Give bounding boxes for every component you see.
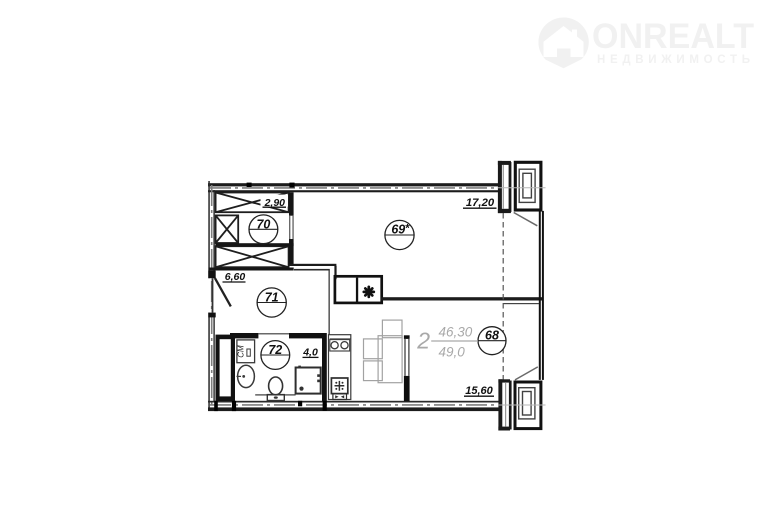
svg-text:49,0: 49,0 bbox=[439, 344, 466, 359]
svg-text:68: 68 bbox=[485, 329, 499, 343]
svg-text:72: 72 bbox=[268, 343, 282, 357]
svg-text:69: 69 bbox=[391, 223, 405, 237]
svg-text:6,60: 6,60 bbox=[225, 271, 246, 283]
svg-text:15,60: 15,60 bbox=[465, 385, 493, 397]
svg-text:17,20: 17,20 bbox=[466, 197, 495, 209]
svg-text:70: 70 bbox=[256, 217, 270, 231]
svg-text:СМ: СМ bbox=[237, 345, 246, 358]
svg-text:46,30: 46,30 bbox=[439, 324, 473, 339]
svg-text:71: 71 bbox=[265, 291, 279, 305]
svg-text:*: * bbox=[405, 223, 410, 235]
svg-text:ONREALT: ONREALT bbox=[592, 17, 754, 56]
svg-text:2: 2 bbox=[416, 328, 430, 354]
